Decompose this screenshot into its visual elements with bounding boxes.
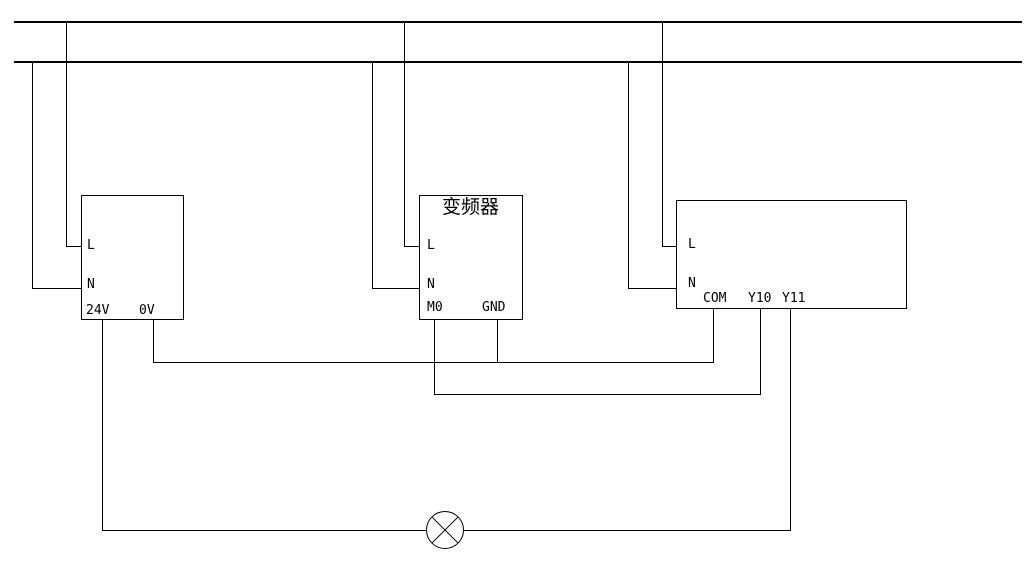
inverter-l-feed-horizontal-wire bbox=[404, 246, 420, 247]
wire-m0-to-y10 bbox=[434, 394, 761, 395]
plc-terminal-y10-label: Y10 bbox=[748, 292, 771, 305]
indicator-lamp-icon bbox=[426, 511, 464, 549]
psu-terminal-l-label: L bbox=[87, 239, 95, 252]
wire-y11-down bbox=[790, 308, 791, 531]
psu-l-feed-horizontal-wire bbox=[66, 246, 82, 247]
lamp-cross-icon bbox=[427, 512, 463, 548]
wire-24v-to-lamp bbox=[102, 530, 427, 531]
inverter-terminal-m0-label: M0 bbox=[427, 301, 443, 314]
psu-terminal-24v-label: 24V bbox=[86, 304, 109, 317]
plc-terminal-y11-label: Y11 bbox=[782, 292, 805, 305]
inverter-terminal-gnd-label: GND bbox=[482, 301, 505, 314]
n-power-rail-wire bbox=[14, 61, 1022, 63]
plc-l-feed-vertical-wire bbox=[662, 21, 663, 247]
plc-n-feed-horizontal-wire bbox=[628, 288, 677, 289]
plc-terminal-n-label: N bbox=[688, 277, 696, 290]
wire-lamp-to-y11 bbox=[463, 530, 791, 531]
psu-terminal-0v-label: 0V bbox=[139, 304, 155, 317]
plc-terminal-com-label: COM bbox=[703, 292, 726, 305]
inverter-l-feed-vertical-wire bbox=[404, 21, 405, 247]
plc-l-feed-horizontal-wire bbox=[662, 246, 677, 247]
l-power-rail-wire bbox=[14, 21, 1022, 23]
inverter-terminal-n-label: N bbox=[427, 278, 435, 291]
power-supply-box bbox=[81, 195, 184, 320]
inverter-n-feed-vertical-wire bbox=[372, 61, 373, 289]
psu-terminal-n-label: N bbox=[87, 278, 95, 291]
wire-0v-down bbox=[153, 319, 154, 363]
wire-com-down bbox=[713, 308, 714, 363]
inverter-n-feed-horizontal-wire bbox=[372, 288, 420, 289]
psu-l-feed-vertical-wire bbox=[66, 21, 67, 247]
psu-n-feed-vertical-wire bbox=[32, 61, 33, 289]
plc-n-feed-vertical-wire bbox=[628, 61, 629, 289]
wire-gnd-down bbox=[497, 319, 498, 363]
wiring-diagram-canvas: L N 24V 0V 变频器 L N M0 GND L N COM Y10 Y1… bbox=[0, 0, 1035, 566]
plc-terminal-l-label: L bbox=[688, 238, 696, 251]
inverter-terminal-l-label: L bbox=[427, 239, 435, 252]
psu-n-feed-horizontal-wire bbox=[32, 288, 82, 289]
wire-y10-down bbox=[760, 308, 761, 395]
wire-m0-down bbox=[434, 319, 435, 395]
wire-24v-down bbox=[102, 319, 103, 531]
inverter-title: 变频器 bbox=[419, 196, 522, 218]
